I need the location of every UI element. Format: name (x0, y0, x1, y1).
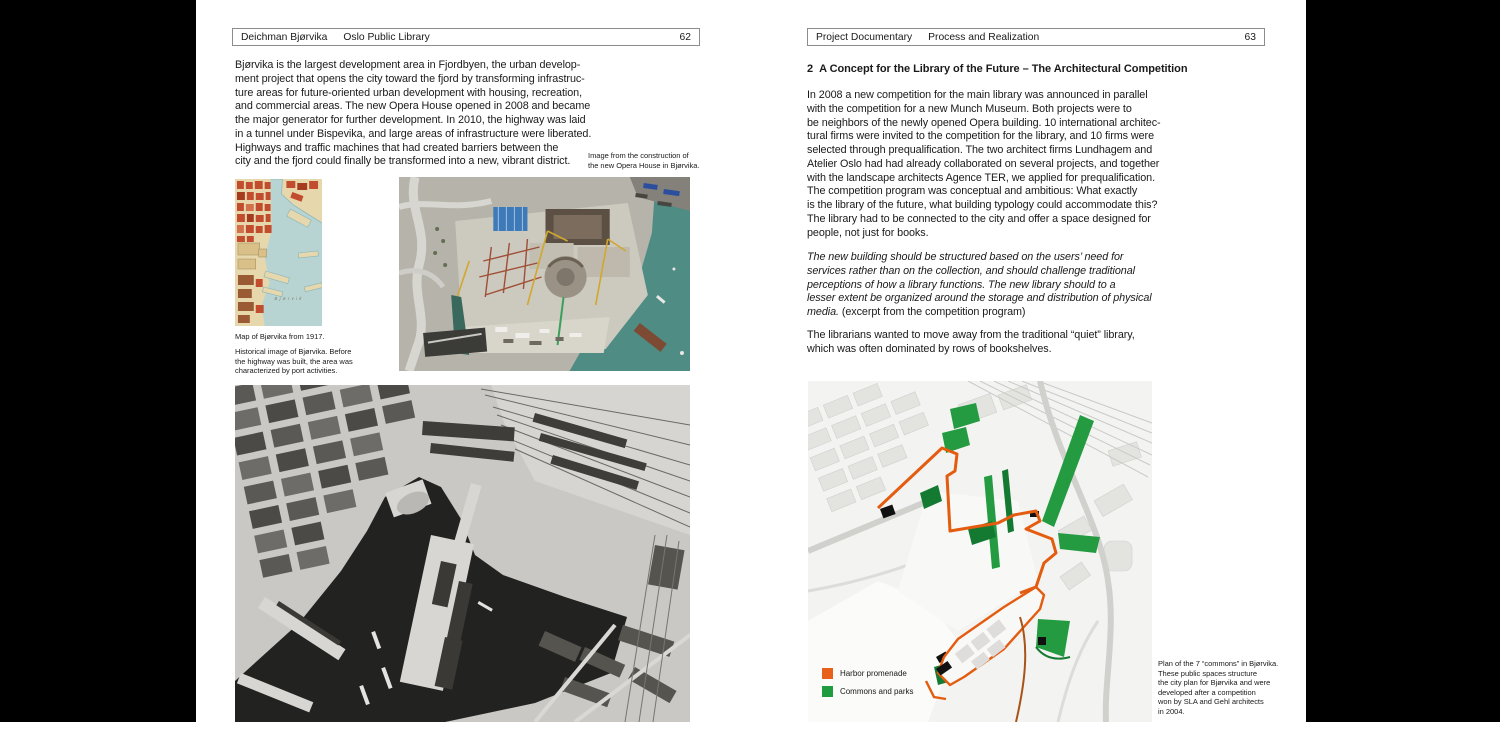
left-matte (0, 0, 196, 722)
construction-photo-illustration (399, 177, 690, 371)
legend-label: Commons and parks (840, 687, 913, 696)
chapter-heading: 2 A Concept for the Library of the Futur… (807, 63, 1277, 77)
map-1917-figure: Bjørvik (235, 179, 322, 326)
body-paragraph-right-2: The librarians wanted to move away from … (807, 329, 1247, 357)
map-caption-body: Historical image of Bjørvika. Before the… (235, 347, 395, 376)
running-title-series: Deichman Bjørvika (241, 32, 327, 43)
map-water-label: Bjørvik (275, 296, 304, 301)
legend-label: Harbor promenade (840, 669, 907, 678)
competition-quote: The new building should be structured ba… (807, 251, 1247, 320)
page-number: 62 (680, 32, 691, 43)
plan-legend: Harbor promenade Commons and parks (822, 668, 913, 704)
map-caption-title: Map of Bjørvika from 1917. (235, 332, 395, 342)
right-matte (1306, 0, 1500, 722)
legend-swatch-harbor-promenade (822, 668, 833, 679)
aerial-bw-photo-figure (235, 385, 690, 722)
construction-photo-caption: Image from the construction of the new O… (588, 151, 708, 170)
legend-item-harbor-promenade: Harbor promenade (822, 668, 913, 679)
commons-plan-figure: Harbor promenade Commons and parks (808, 381, 1152, 722)
running-header-left: Deichman Bjørvika Oslo Public Library 62 (232, 28, 700, 46)
page-number: 63 (1245, 32, 1256, 43)
body-paragraph-right-1: In 2008 a new competition for the main l… (807, 89, 1247, 240)
map-1917-illustration: Bjørvik (235, 179, 322, 326)
aerial-bw-illustration (235, 385, 690, 722)
legend-item-commons-parks: Commons and parks (822, 686, 913, 697)
plan-caption: Plan of the 7 “commons” in Bjørvika. The… (1158, 659, 1300, 717)
running-title-section: Process and Realization (928, 32, 1039, 43)
legend-swatch-commons-parks (822, 686, 833, 697)
running-header-right: Project Documentary Process and Realizat… (807, 28, 1265, 46)
construction-photo-figure (399, 177, 690, 371)
running-title-section: Oslo Public Library (343, 32, 429, 43)
running-title-series: Project Documentary (816, 32, 912, 43)
quote-source-text: (excerpt from the competition program) (839, 306, 1026, 318)
